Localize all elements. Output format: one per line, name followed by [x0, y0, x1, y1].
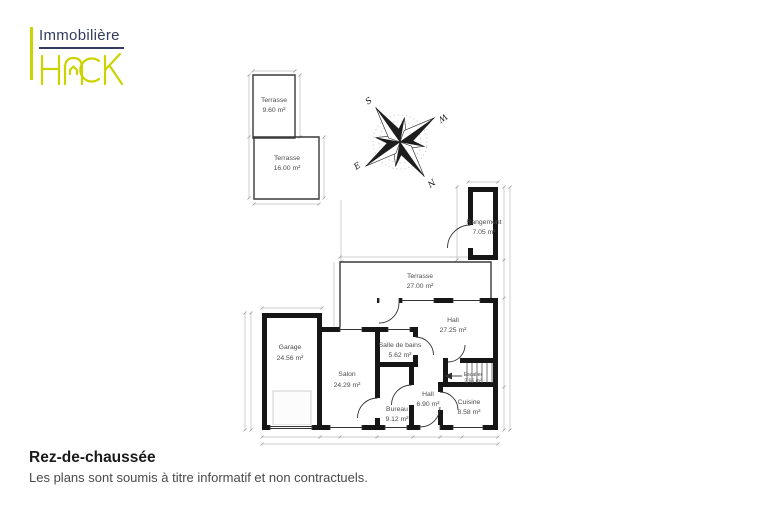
svg-text:Cuisine: Cuisine: [458, 399, 481, 406]
plan-footer: Rez-de-chaussée Les plans sont soumis à …: [29, 449, 368, 485]
svg-text:Salle de bains: Salle de bains: [379, 342, 422, 349]
svg-text:Terrasse: Terrasse: [407, 273, 433, 280]
svg-text:Hall: Hall: [447, 317, 459, 324]
brand-name-top: Immobilière: [39, 27, 124, 49]
disclaimer: Les plans sont soumis à titre informatif…: [29, 470, 368, 485]
logo-text-block: Immobilière: [39, 27, 127, 87]
room-label-bureau: Bureau 9.12 m²: [385, 406, 409, 423]
floor-title: Rez-de-chaussée: [29, 449, 368, 467]
room-label-terrasse-9: Terrasse 9.60 m²: [261, 97, 287, 114]
compass-star: [365, 107, 435, 177]
svg-text:Escalier: Escalier: [464, 372, 483, 378]
svg-text:24.29 m²: 24.29 m²: [334, 382, 362, 389]
svg-text:24.56 m²: 24.56 m²: [277, 355, 305, 362]
svg-text:Salon: Salon: [338, 371, 356, 378]
svg-text:Garage: Garage: [279, 344, 302, 351]
svg-text:9.12 m²: 9.12 m²: [385, 416, 409, 423]
room-label-garage: Garage 24.56 m²: [277, 344, 305, 362]
svg-text:Hall: Hall: [422, 391, 434, 398]
svg-text:Terrasse: Terrasse: [261, 97, 287, 104]
room-label-terrasse-27: Terrasse 27.00 m²: [407, 273, 435, 290]
svg-text:2.66 m²: 2.66 m²: [464, 379, 482, 385]
compass-rose: S W N E: [350, 95, 451, 190]
svg-text:27.00 m²: 27.00 m²: [407, 283, 435, 290]
svg-text:9.60 m²: 9.60 m²: [262, 107, 286, 114]
svg-text:Rangement: Rangement: [466, 219, 501, 226]
svg-text:16.00 m²: 16.00 m²: [274, 165, 302, 172]
room-label-terrasse-16: Terrasse 16.00 m²: [274, 155, 302, 172]
svg-text:8.58 m²: 8.58 m²: [457, 409, 481, 416]
room-label-hall-6: Hall 6.90 m²: [416, 391, 440, 408]
svg-text:Terrasse: Terrasse: [274, 155, 300, 162]
svg-text:6.90 m²: 6.90 m²: [416, 401, 440, 408]
door-arcs: [358, 225, 471, 427]
svg-text:5.62 m²: 5.62 m²: [388, 352, 412, 359]
svg-text:Bureau: Bureau: [386, 406, 408, 413]
compass-label-north: N: [424, 176, 437, 189]
compass-label-south: S: [364, 96, 375, 108]
logo-accent-bar: [30, 27, 33, 80]
room-label-salon: Salon 24.29 m²: [334, 371, 362, 389]
svg-text:27.25 m²: 27.25 m²: [440, 327, 468, 334]
room-label-cuisine: Cuisine 8.58 m²: [457, 399, 481, 416]
room-label-escalier: Escalier 2.66 m²: [464, 372, 483, 385]
hack-letterforms: [42, 54, 122, 84]
brand-name-bottom-logo: [39, 53, 127, 87]
garage-door-zone: [273, 391, 311, 425]
compass-label-east: E: [351, 160, 363, 173]
compass-label-west: W: [435, 111, 449, 125]
svg-text:7.05 m²: 7.05 m²: [472, 229, 496, 236]
brand-logo: Immobilière: [30, 27, 127, 87]
terrace-outlines: [253, 75, 491, 330]
room-label-hall-27: Hall 27.25 m²: [440, 317, 468, 334]
